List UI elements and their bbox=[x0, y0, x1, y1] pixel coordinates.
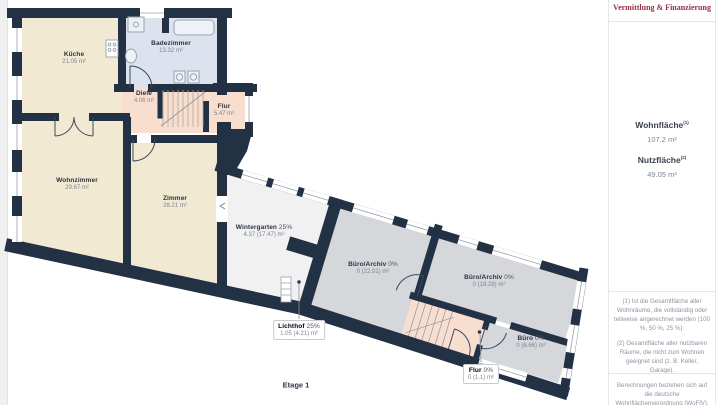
sink-icon bbox=[126, 49, 137, 63]
wohnflaeche-label: Wohnfläche(1) bbox=[609, 120, 715, 130]
washer-icon bbox=[188, 71, 199, 83]
ladder-icon bbox=[281, 277, 291, 302]
footnote-2: (2) Gesamtfläche aller nutzbaren Räume, … bbox=[614, 340, 710, 376]
room-label-wintergarten: Wintergarten 25% 4.37 (17.47) m² bbox=[236, 224, 292, 238]
room-zimmer bbox=[131, 143, 217, 288]
sidebar-divider bbox=[609, 373, 715, 374]
room-label-diele: Diele 4.06 m² bbox=[134, 90, 154, 104]
floorplan-page: Küche 21.05 m² Badezimmer 13.32 m² Diele… bbox=[0, 0, 720, 405]
footnote-1: (1) Ist die Gesamtfläche aller Wohnräume… bbox=[614, 298, 710, 334]
room-label-zimmer: Zimmer 28.21 m² bbox=[163, 195, 187, 209]
room-kueche bbox=[17, 13, 122, 117]
area-metrics: Wohnfläche(1) 107.2 m² Nutzfläche(2) 49.… bbox=[609, 120, 715, 190]
wall-junction bbox=[217, 129, 253, 175]
wohnflaeche-value: 107.2 m² bbox=[609, 135, 715, 144]
info-sidebar: Vermittlung & Finanzierung Wohnfläche(1)… bbox=[608, 0, 716, 405]
room-label-buero: Büro 0% 0 (6.66) m² bbox=[516, 335, 545, 349]
brand-tagline: Vermittlung & Finanzierung bbox=[609, 0, 715, 22]
nutzflaeche-label: Nutzfläche(2) bbox=[609, 155, 715, 165]
washer-icon bbox=[174, 71, 185, 83]
room-label-kueche: Küche 21.05 m² bbox=[62, 51, 86, 65]
callout-lichthof: Lichthof 25% 1.05 (4.21) m² bbox=[273, 320, 325, 340]
cooktop-icon bbox=[106, 40, 118, 57]
floor-caption: Etage 1 bbox=[283, 381, 310, 390]
sidebar-divider bbox=[609, 291, 715, 292]
room-label-wohnzimmer: Wohnzimmer 29.67 m² bbox=[56, 177, 98, 191]
bathtub-icon bbox=[174, 20, 214, 35]
room-label-buero-archiv-1: Büro/Archiv 0% 0 (22.01) m² bbox=[348, 261, 398, 275]
room-label-flur-og: Flur 5.47 m² bbox=[214, 103, 234, 117]
stairs-left-block bbox=[161, 90, 205, 127]
room-label-badezimmer: Badezimmer 13.32 m² bbox=[151, 40, 191, 54]
callout-flur-eg: Flur 0% 0 (1.1) m² bbox=[463, 364, 499, 384]
shower-icon bbox=[128, 17, 144, 32]
nutzflaeche-value: 49.05 m² bbox=[609, 170, 715, 179]
room-label-buero-archiv-2: Büro/Archiv 0% 0 (19.28) m² bbox=[464, 274, 514, 288]
disclaimer-text: Berechnungen beziehen sich auf die deuts… bbox=[614, 382, 710, 405]
